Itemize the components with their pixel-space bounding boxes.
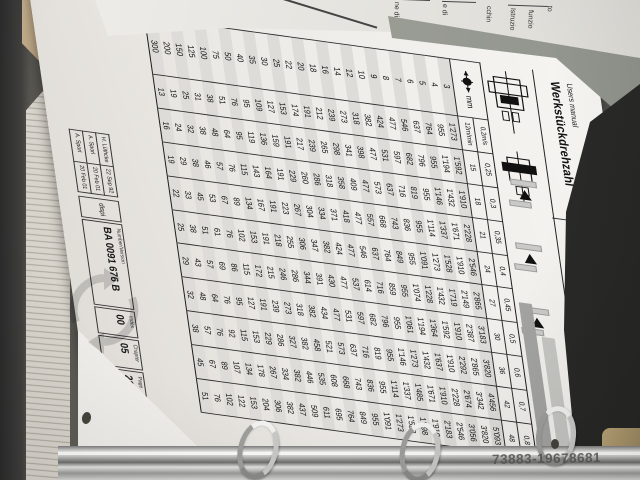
footer-stamp-block: H. Lüthcke22 Sep 92A. Sporl20 Feb 01A. S… xyxy=(69,129,149,409)
backing-separator-line xyxy=(442,1,476,3)
belt-position-indicator xyxy=(511,242,550,276)
punched-hole xyxy=(551,439,559,449)
page-number-box: Page 28/44 xyxy=(103,367,149,408)
index-box: Index 00 xyxy=(94,307,138,339)
heading-separator xyxy=(566,312,611,319)
watermark-number: 73883-19678681 xyxy=(492,450,601,467)
speed-table: mm 0,2m/s0,250,30,350,40,450,50,60,70,8 … xyxy=(144,16,537,458)
index-value: 00 xyxy=(112,313,129,333)
diameter-icon xyxy=(459,69,474,94)
backing-separator-line xyxy=(508,5,548,7)
backing-text-fragment: Istruzio xyxy=(508,8,516,31)
document-number-box: Number/Version BA 0091 676 B xyxy=(82,219,135,310)
dispo-value: dispi xyxy=(93,202,109,217)
belt-arrow-icon xyxy=(518,189,532,200)
belt-bar-icon xyxy=(514,263,537,272)
chapter-box: Chapter 05 xyxy=(98,335,143,371)
belt-arrow-icon xyxy=(524,253,538,264)
backing-text-fragment: funzio xyxy=(526,10,534,29)
speed-table-body: 31'2731'5921'9102'2282'5462'8653'1833'82… xyxy=(144,17,506,454)
unit-label: mm xyxy=(465,95,477,109)
backing-text-fragment: cchin xyxy=(484,6,492,23)
backing-separator-line xyxy=(396,0,430,1)
belt-position-indicator xyxy=(506,178,545,212)
spindle-pulley-diagram-icon xyxy=(482,68,538,137)
belt-bar-icon xyxy=(515,242,542,252)
heading-separator xyxy=(552,218,597,225)
page-title-spanish: Revoluciones de la pieza xyxy=(580,230,603,321)
backing-text-fragment: e di xyxy=(441,4,448,16)
page-title-italian: Numero dei giri del pezzo xyxy=(593,325,619,433)
background-dark-left xyxy=(0,0,30,480)
belt-bar-icon xyxy=(509,199,532,208)
photo-of-binder-manual-page: ne di re e di cchin Istruzio funzio to U… xyxy=(0,0,640,480)
approvals-table: H. Lüthcke22 Sep 92A. Sporl20 Feb 01A. S… xyxy=(69,129,119,198)
backing-frame-line xyxy=(283,0,377,29)
